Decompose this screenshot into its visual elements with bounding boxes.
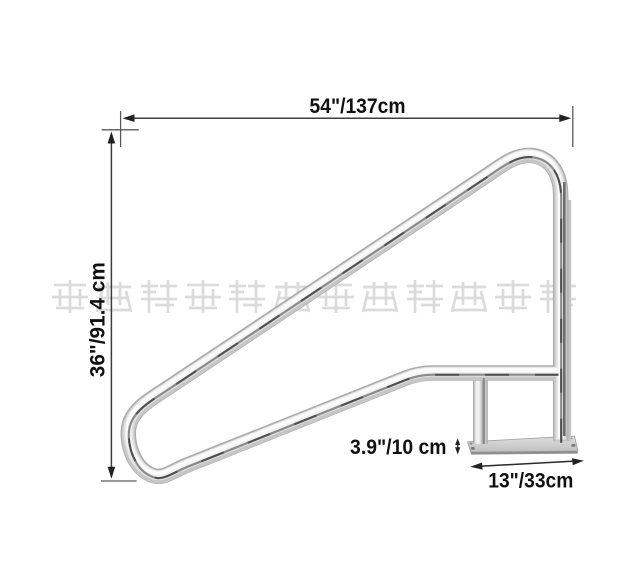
svg-text:54"/137cm: 54"/137cm: [310, 94, 406, 118]
svg-text:3.9"/10 cm: 3.9"/10 cm: [350, 435, 447, 459]
svg-text:13"/33cm: 13"/33cm: [488, 469, 573, 493]
svg-text:36"/91.4 cm: 36"/91.4 cm: [86, 262, 110, 377]
